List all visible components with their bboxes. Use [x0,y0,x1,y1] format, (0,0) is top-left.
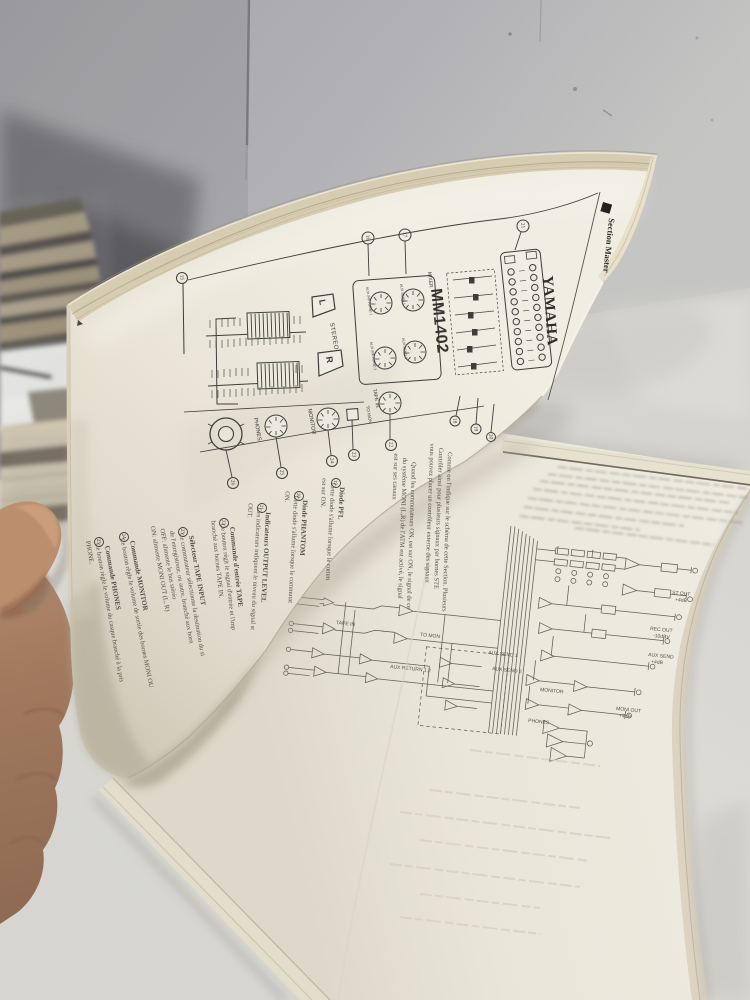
svg-text:OUT.: OUT. [246,503,254,518]
svg-text:23: 23 [350,451,357,458]
svg-text:15: 15 [178,274,185,281]
svg-text:ON.: ON. [283,491,291,503]
svg-text:22: 22 [387,441,394,448]
svg-text:24: 24 [328,457,335,464]
svg-text:20: 20 [295,493,300,499]
svg-text:19: 19 [332,480,337,486]
svg-text:21: 21 [258,505,263,511]
svg-text:26: 26 [229,479,236,486]
svg-text:21: 21 [519,223,526,229]
svg-text:17: 17 [401,231,408,238]
svg-text:25: 25 [278,469,285,476]
svg-text:18: 18 [451,418,458,424]
svg-text:16: 16 [364,234,371,241]
svg-text:19: 19 [472,426,479,432]
svg-text:20: 20 [487,434,494,440]
